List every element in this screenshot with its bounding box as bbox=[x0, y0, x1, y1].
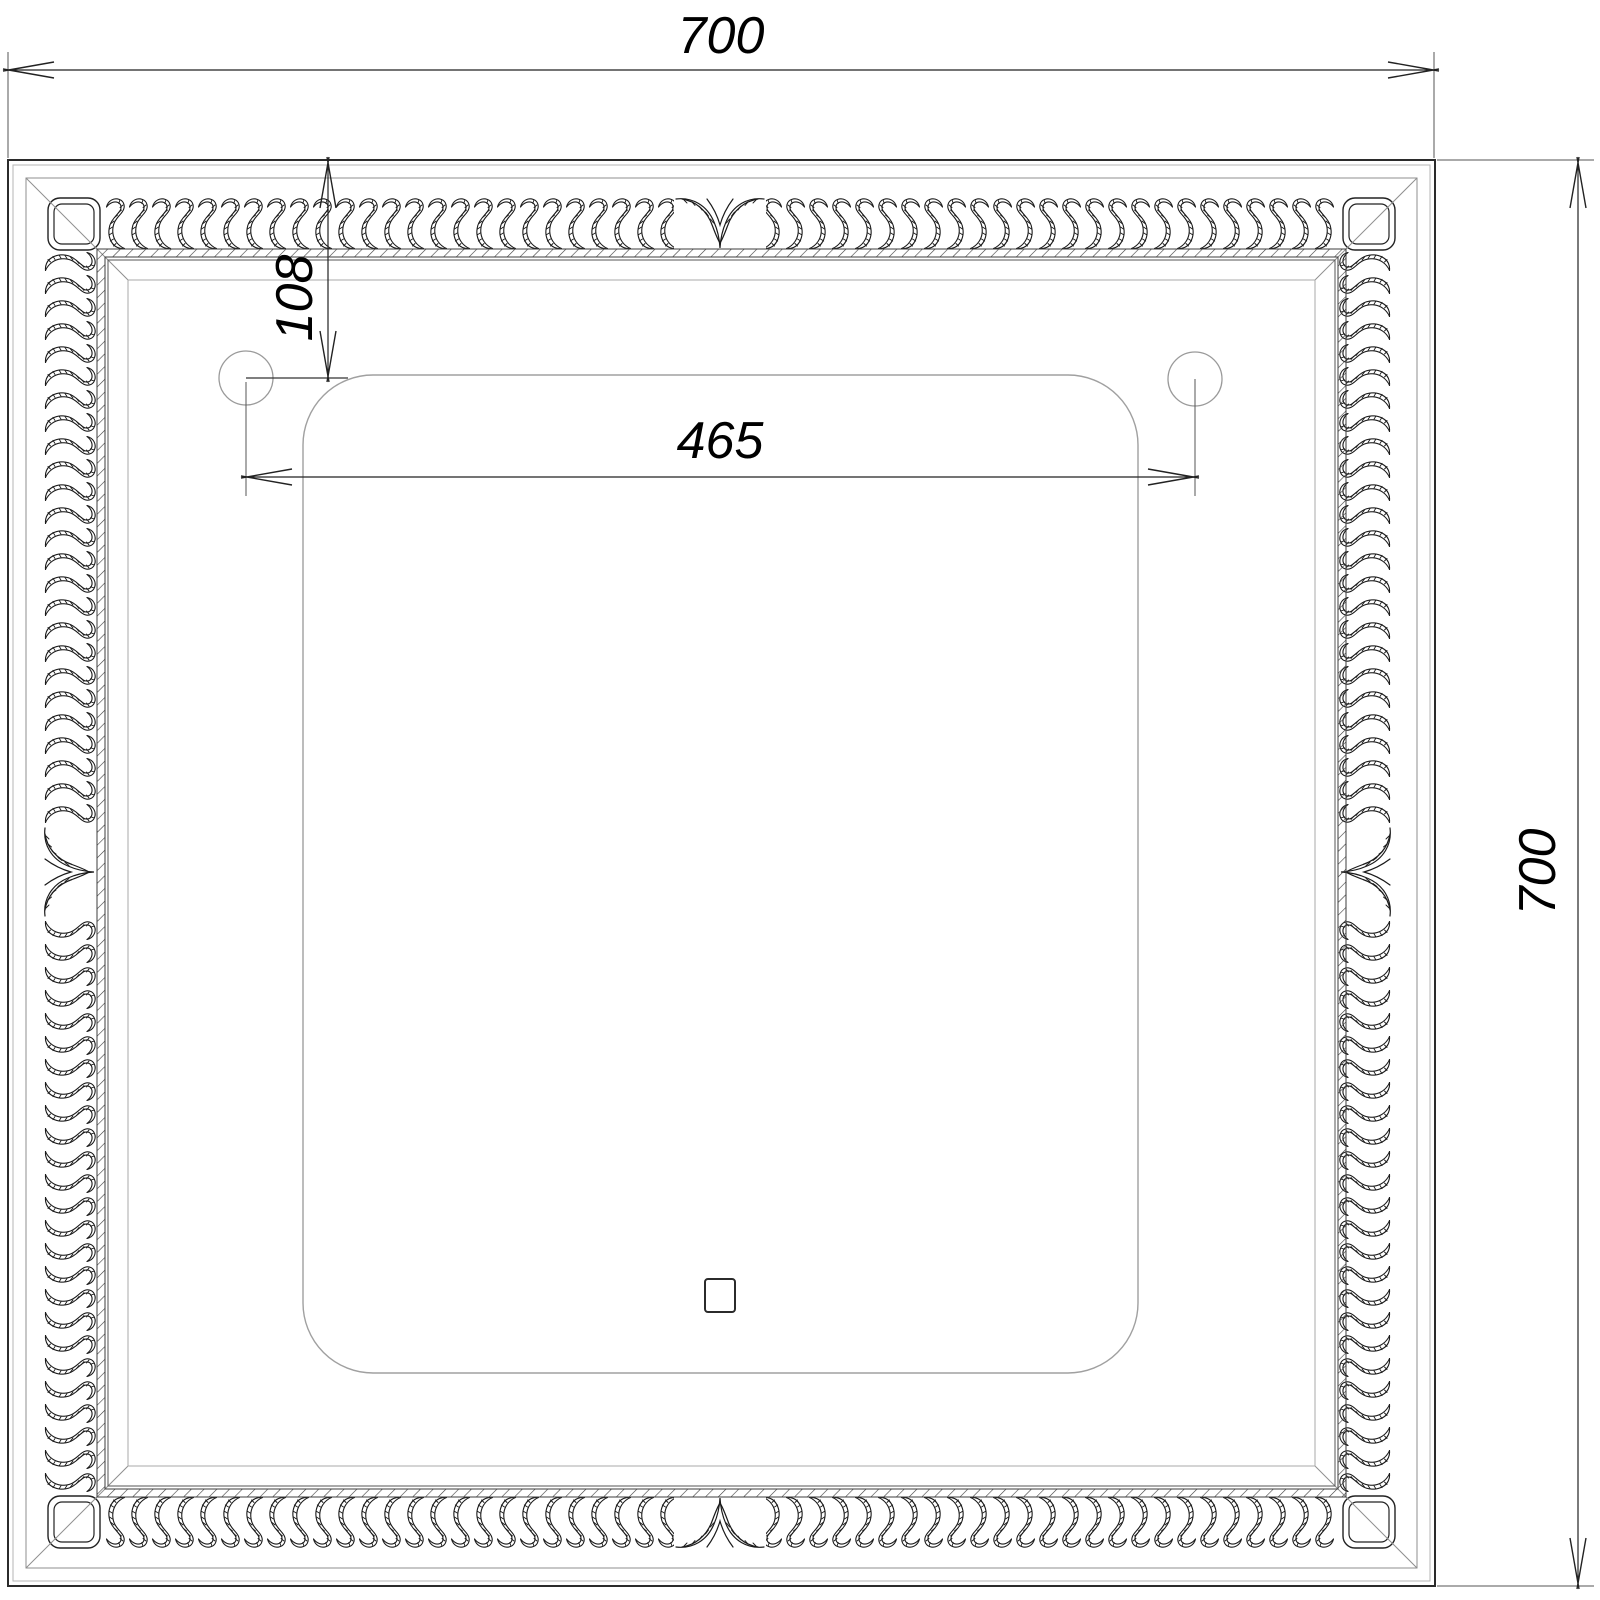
ornament-motif-top bbox=[674, 197, 766, 251]
dimension-overall-height: 700 bbox=[1437, 157, 1594, 1589]
ornament-corner-top-left bbox=[48, 198, 100, 250]
drawing-canvas: 700 700 108 465 bbox=[0, 0, 1600, 1600]
dim-hole-top-offset-label: 108 bbox=[266, 255, 324, 342]
mirror-technical-drawing: 700 700 108 465 bbox=[0, 0, 1600, 1600]
dim-overall-width-label: 700 bbox=[678, 7, 765, 65]
ornament-corner-bottom-left bbox=[48, 1496, 100, 1548]
dimension-hole-top-offset: 108 bbox=[246, 157, 348, 382]
ornament-corner-top-right bbox=[1343, 198, 1395, 250]
dimension-hole-spacing: 465 bbox=[241, 379, 1199, 496]
mirror-glass-outline bbox=[303, 375, 1138, 1373]
ornament-band bbox=[26, 178, 1417, 1568]
ornament-motif-bottom bbox=[674, 1495, 766, 1549]
mitre-joints bbox=[26, 178, 1417, 1568]
frame-outer-inner-line bbox=[13, 165, 1430, 1581]
ornament-band-outer-line bbox=[26, 178, 1417, 1568]
dim-hole-spacing-label: 465 bbox=[677, 412, 765, 470]
dim-overall-height-label: 700 bbox=[1509, 829, 1567, 916]
ornament-corner-bottom-right bbox=[1343, 1496, 1395, 1548]
dimension-overall-width: 700 bbox=[3, 7, 1439, 158]
ornament-motif-left bbox=[43, 826, 97, 918]
touch-switch bbox=[705, 1279, 735, 1312]
